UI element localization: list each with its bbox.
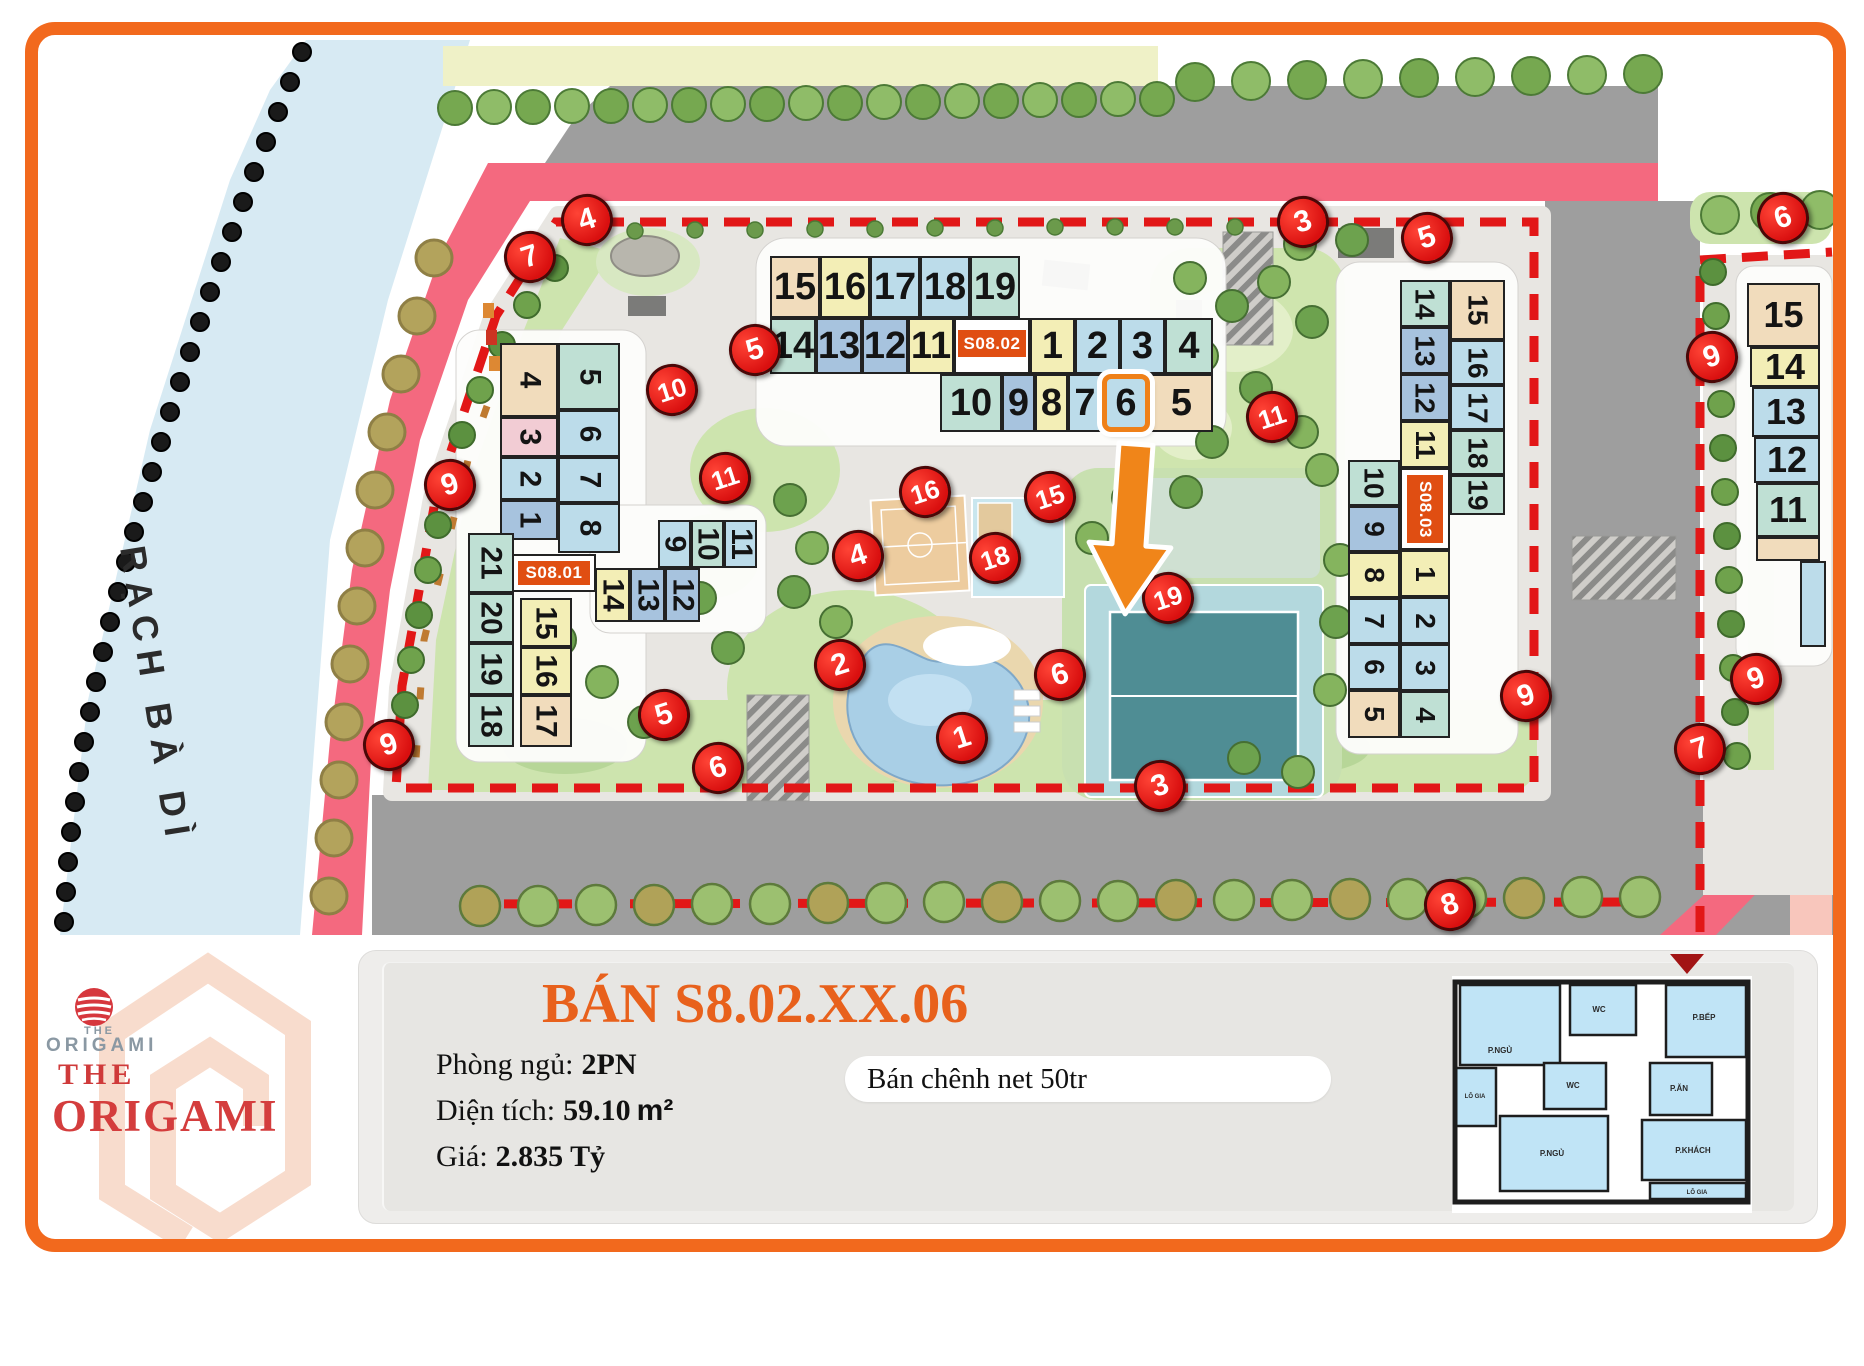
svg-text:WC: WC xyxy=(1566,1081,1580,1090)
listing-title: BÁN S8.02.XX.06 xyxy=(542,972,968,1036)
top-field-strip xyxy=(443,46,1158,86)
bedrooms-label: Phòng ngủ: xyxy=(436,1048,574,1081)
unit-cell-S08.03-17[interactable]: 17 xyxy=(1450,385,1505,430)
unit-cell-S08.03-11[interactable]: 11 xyxy=(1400,421,1450,468)
unit-cell-S08.01-9[interactable]: 9 xyxy=(658,520,691,568)
unit-cell-S08.01-3[interactable]: 3 xyxy=(500,417,558,457)
unit-cell-S08.03-9[interactable]: 9 xyxy=(1348,506,1400,552)
unit-cell-S08.02-5[interactable]: 5 xyxy=(1150,374,1213,432)
unit-cell-S08.04-partial-13[interactable]: 13 xyxy=(1752,387,1820,437)
unit-cell-S08.02-19[interactable]: 19 xyxy=(970,256,1020,318)
area-label: Diện tích: xyxy=(436,1094,555,1127)
unit-cell-S08.02-16[interactable]: 16 xyxy=(820,256,870,318)
unit-cell-S08.01-17[interactable]: 17 xyxy=(520,695,572,747)
unit-cell-S08.01-10[interactable]: 10 xyxy=(691,520,724,568)
unit-cell-S08.03-10[interactable]: 10 xyxy=(1348,460,1400,506)
unit-cell-S08.03-13[interactable]: 13 xyxy=(1400,327,1450,374)
logo-origami-big: ORIGAMI xyxy=(52,1090,279,1142)
unit-cell-S08.01-21[interactable]: 21 xyxy=(468,533,514,593)
price-row: Giá:2.835 Tỷ xyxy=(436,1140,673,1173)
unit-cell-S08.02-17[interactable]: 17 xyxy=(870,256,920,318)
unit-cell-S08.03-2[interactable]: 2 xyxy=(1400,597,1450,644)
svg-text:LÔ GIA: LÔ GIA xyxy=(1465,1092,1486,1100)
unit-cell-S08.01-8[interactable]: 8 xyxy=(558,503,620,553)
unit-cell-S08.03-8[interactable]: 8 xyxy=(1348,552,1400,598)
price-label: Giá: xyxy=(436,1140,488,1173)
unit-details: Phòng ngủ:2PN Diện tích:59.10m² Giá:2.83… xyxy=(436,1048,673,1186)
floorplan-thumbnail[interactable]: P.NGỦWCP.BẾPP.ĂNLÔ GIAWCP.NGỦP.KHÁCHLÔ G… xyxy=(1452,948,1752,1213)
unit-cell-S08.02-2[interactable]: 2 xyxy=(1075,318,1120,374)
unit-cell-S08.04-partial-15[interactable]: 15 xyxy=(1747,283,1820,347)
unit-cell-S08.01-7[interactable]: 7 xyxy=(558,457,620,503)
unit-pointer-arrow xyxy=(1080,435,1180,625)
unit-cell-S08.02-1[interactable]: 1 xyxy=(1030,318,1075,374)
svg-text:P.KHÁCH: P.KHÁCH xyxy=(1675,1146,1711,1155)
block-label-S08.01: S08.01 xyxy=(518,561,590,585)
unit-cell-S08.03-18[interactable]: 18 xyxy=(1450,430,1505,475)
area-value: 59.10 xyxy=(563,1094,631,1127)
unit-cell-S08.03-19[interactable]: 19 xyxy=(1450,475,1505,515)
unit-cell-S08.01-18[interactable]: 18 xyxy=(468,695,514,747)
unit-cell-S08.01-12[interactable]: 12 xyxy=(665,568,700,622)
bedrooms-value: 2PN xyxy=(582,1048,637,1081)
svg-text:P.NGỦ: P.NGỦ xyxy=(1540,1149,1565,1158)
unit-cell-S08.02-3[interactable]: 3 xyxy=(1120,318,1165,374)
unit-cell-S08.01-6[interactable]: 6 xyxy=(558,410,620,457)
unit-cell-S08.02-6[interactable]: 6 xyxy=(1102,374,1150,432)
note-input[interactable]: Bán chênh net 50tr xyxy=(845,1056,1331,1102)
unit-cell-S08.02-13[interactable]: 13 xyxy=(816,318,862,374)
unit-cell-S08.04-partial-11[interactable]: 11 xyxy=(1756,483,1820,537)
unit-cell-S08.02-8[interactable]: 8 xyxy=(1035,374,1068,432)
unit-cell-S08.03-14[interactable]: 14 xyxy=(1400,280,1450,327)
bedrooms-row: Phòng ngủ:2PN xyxy=(436,1048,673,1081)
unit-cell-S08.01-4[interactable]: 4 xyxy=(500,343,558,417)
unit-cell-S08.01-11[interactable]: 11 xyxy=(724,520,757,568)
origami-sales-page: RẠCH BÀ DÌ 15161718191413121112341098765… xyxy=(0,0,1864,1366)
unit-cell-S08.03-4[interactable]: 4 xyxy=(1400,691,1450,738)
unit-cell-S08.01-16[interactable]: 16 xyxy=(520,647,572,695)
origami-sun-logo-icon xyxy=(74,987,114,1027)
unit-cell-S08.01-14[interactable]: 14 xyxy=(595,568,630,622)
block-label-S08.03: S08.03 xyxy=(1407,475,1443,543)
unit-cell-S08.03-7[interactable]: 7 xyxy=(1348,598,1400,644)
unit-cell-S08.02-12[interactable]: 12 xyxy=(862,318,908,374)
unit-cell-S08.02-7[interactable]: 7 xyxy=(1068,374,1102,432)
unit-cell-S08.01-5[interactable]: 5 xyxy=(558,343,620,410)
swimming-pool xyxy=(833,616,1043,788)
unit-cell-S08.02-4[interactable]: 4 xyxy=(1165,318,1213,374)
unit-cell-S08.01-15[interactable]: 15 xyxy=(520,598,572,647)
unit-cell-S08.01-19[interactable]: 19 xyxy=(468,643,514,695)
svg-text:P.BẾP: P.BẾP xyxy=(1693,1012,1717,1022)
svg-text:LÔ GIA: LÔ GIA xyxy=(1687,1188,1708,1196)
logo-origami-small: ORIGAMI xyxy=(46,1035,157,1057)
unit-cell-S08.02-18[interactable]: 18 xyxy=(920,256,970,318)
svg-text:WC: WC xyxy=(1592,1005,1606,1014)
unit-cell-S08.04-partial-12[interactable]: 12 xyxy=(1754,437,1820,483)
unit-cell-S08.04-partial-14[interactable]: 14 xyxy=(1750,347,1820,387)
unit-cell-S08.03-6[interactable]: 6 xyxy=(1348,644,1400,690)
unit-cell-S08.04-partial-x[interactable] xyxy=(1800,561,1826,647)
unit-cell-S08.02-9[interactable]: 9 xyxy=(1002,374,1035,432)
unit-cell-S08.03-16[interactable]: 16 xyxy=(1450,340,1505,385)
unit-cell-S08.02-15[interactable]: 15 xyxy=(770,256,820,318)
price-value: 2.835 Tỷ xyxy=(496,1140,605,1173)
area-row: Diện tích:59.10m² xyxy=(436,1094,673,1127)
unit-cell-S08.03-12[interactable]: 12 xyxy=(1400,374,1450,421)
unit-cell-S08.02-11[interactable]: 11 xyxy=(908,318,954,374)
unit-cell-S08.01-13[interactable]: 13 xyxy=(630,568,665,622)
logo-the-big: THE xyxy=(58,1058,136,1092)
svg-text:P.NGỦ: P.NGỦ xyxy=(1488,1046,1513,1055)
unit-cell-S08.02-10[interactable]: 10 xyxy=(940,374,1002,432)
floorplan-arrow-icon xyxy=(1670,954,1704,974)
unit-cell-S08.03-3[interactable]: 3 xyxy=(1400,644,1450,691)
block-label-S08.02: S08.02 xyxy=(958,330,1026,357)
unit-cell-S08.01-2[interactable]: 2 xyxy=(500,457,558,500)
svg-text:P.ĂN: P.ĂN xyxy=(1670,1084,1688,1093)
area-unit: m² xyxy=(637,1094,674,1127)
unit-cell-S08.03-1[interactable]: 1 xyxy=(1400,550,1450,597)
unit-cell-S08.04-partial-x[interactable] xyxy=(1756,537,1820,561)
unit-cell-S08.03-5[interactable]: 5 xyxy=(1348,690,1400,738)
unit-cell-S08.01-20[interactable]: 20 xyxy=(468,593,514,643)
unit-cell-S08.03-15[interactable]: 15 xyxy=(1450,280,1505,340)
